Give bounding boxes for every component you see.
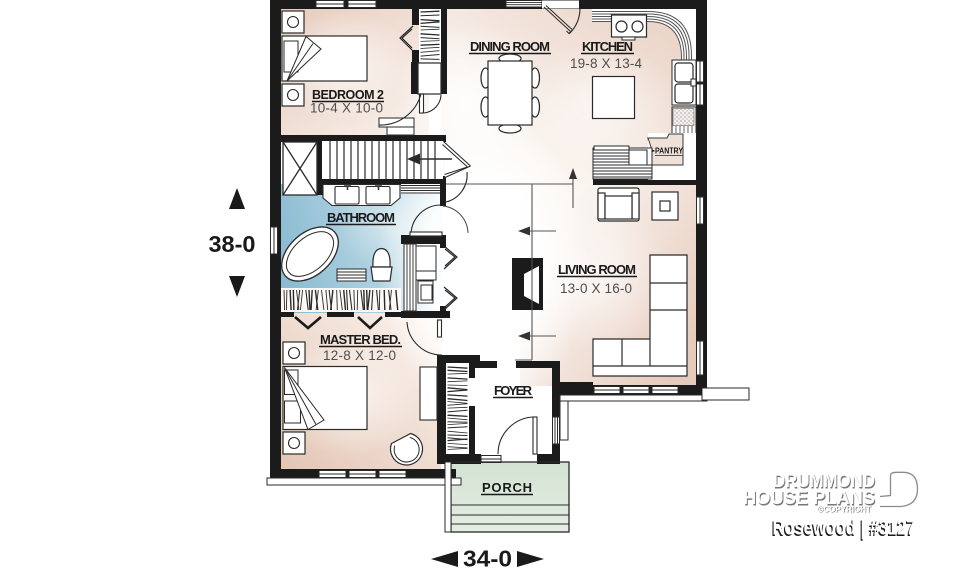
svg-text:KITCHEN: KITCHEN [582,39,633,54]
svg-text:19-8 X 13-4: 19-8 X 13-4 [570,56,642,71]
svg-text:BATHROOM: BATHROOM [327,210,395,225]
svg-text:PORCH: PORCH [482,480,532,495]
svg-text:LIVING ROOM: LIVING ROOM [558,262,636,277]
svg-text:DINING ROOM: DINING ROOM [470,39,550,54]
svg-text:13-0 X 16-0: 13-0 X 16-0 [560,281,632,296]
svg-text:MASTER BED.: MASTER BED. [320,332,401,347]
svg-text:38-0: 38-0 [209,231,256,257]
svg-text:PANTRY: PANTRY [655,146,683,156]
svg-text:Rosewood | #3127: Rosewood | #3127 [773,517,916,540]
svg-text:©COPYRIGHT: ©COPYRIGHT [818,505,872,514]
svg-text:10-4 X 10-0: 10-4 X 10-0 [310,101,383,116]
svg-text:12-8 X 12-0: 12-8 X 12-0 [323,348,396,363]
svg-text:34-0: 34-0 [463,546,512,569]
svg-text:FOYER: FOYER [494,383,533,398]
